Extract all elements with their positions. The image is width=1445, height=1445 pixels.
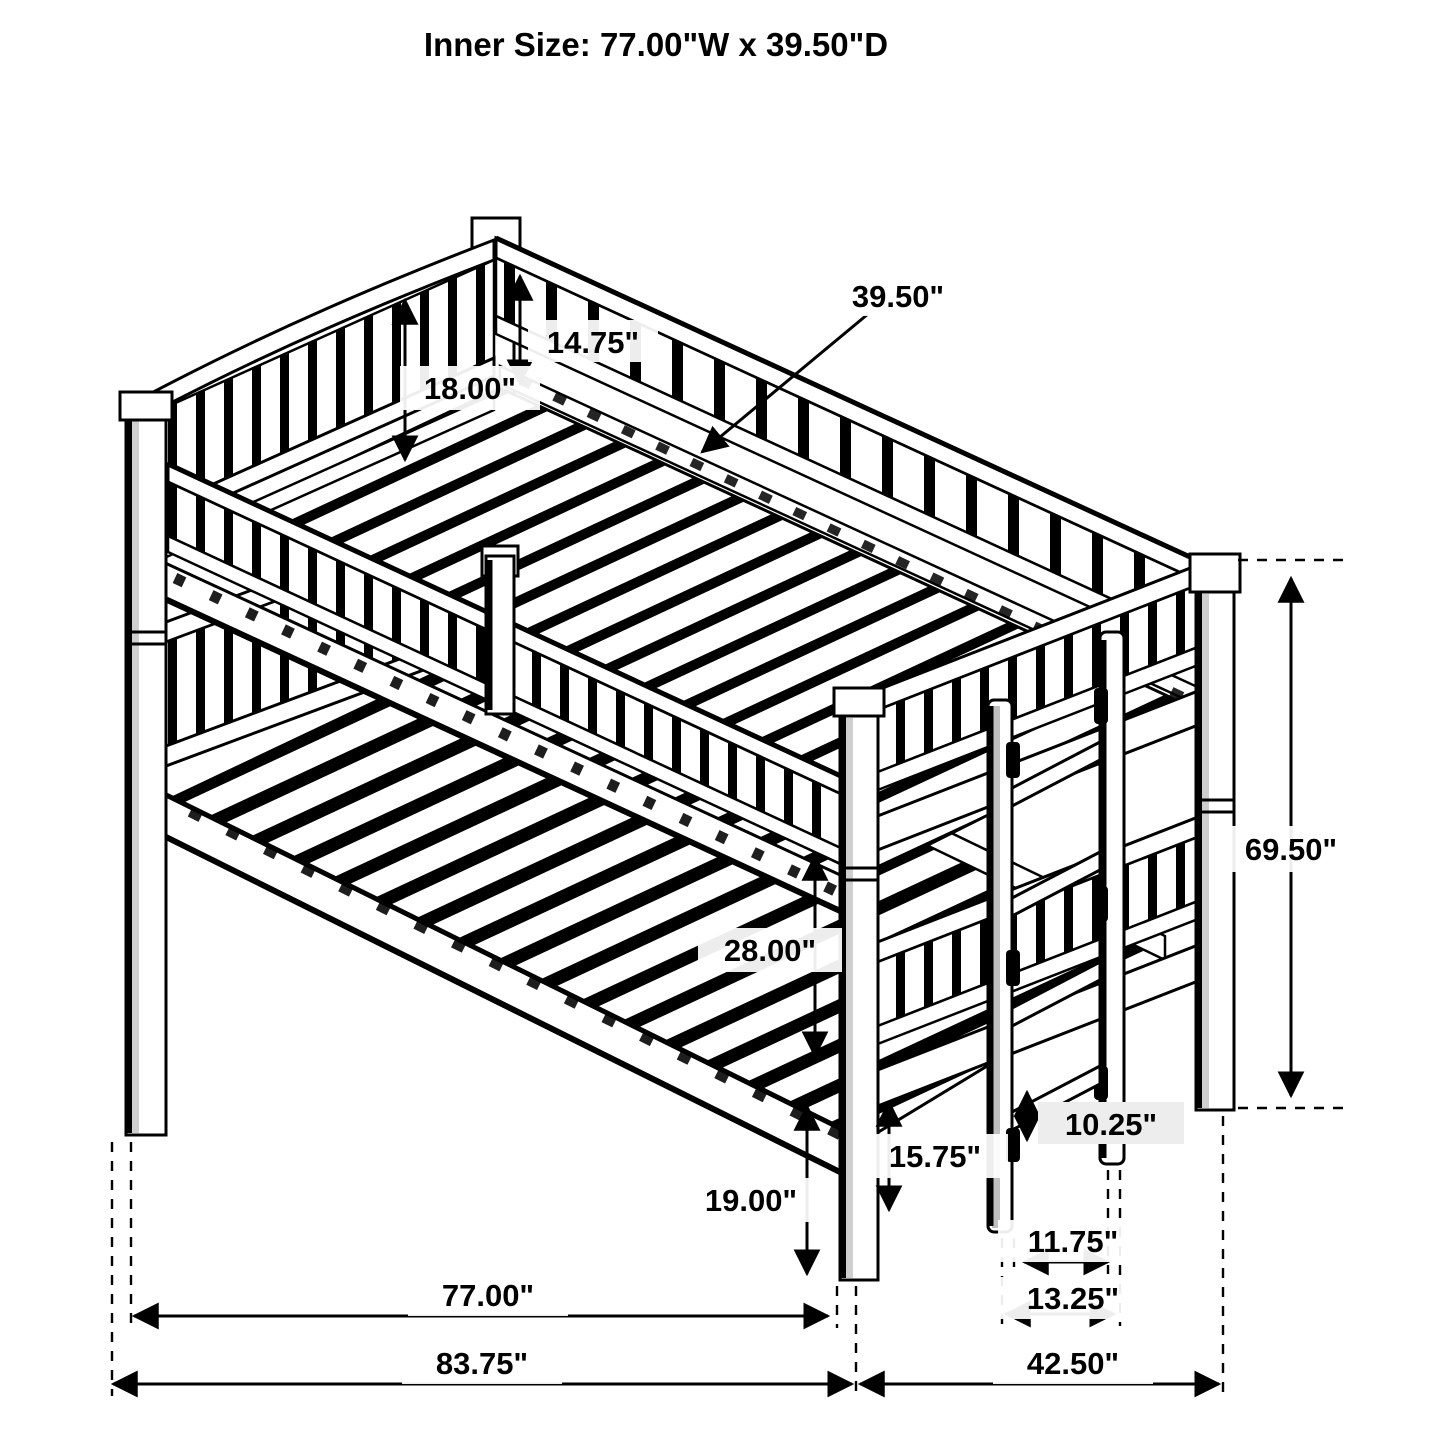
dim-ladder-inner-label: 11.75" (1028, 1224, 1119, 1259)
dim-ladder-inner: 11.75" (998, 1220, 1148, 1262)
dim-overall-length-label: 83.75" (436, 1346, 528, 1381)
dim-ladder-outer: 13.25" (998, 1277, 1148, 1319)
ladder-bracket (1094, 886, 1108, 922)
dim-rung-spacing-label: 10.25" (1065, 1107, 1157, 1142)
dim-under-clearance-label: 15.75" (889, 1139, 981, 1174)
dim-guard-height-label: 14.75" (547, 325, 639, 360)
dim-bunk-clearance-label: 28.00" (724, 933, 816, 968)
dim-inner-depth-label: 39.50" (852, 279, 944, 314)
ladder-bracket (1094, 688, 1108, 724)
head-front-post-cap (120, 392, 172, 420)
page-title: Inner Size: 77.00"W x 39.50"D (424, 26, 888, 63)
foot-front-post-cap (834, 688, 884, 716)
dim-headboard-height-label: 18.00" (424, 371, 516, 406)
dim-overall-height-label: 69.50" (1245, 832, 1337, 867)
dim-inner-length-label: 77.00" (442, 1278, 534, 1313)
ladder-bracket (1006, 950, 1020, 986)
diagram-canvas: 39.50" 14.75" 18.00" 69.50" 28.00" 19.00… (0, 0, 1445, 1445)
bunk-bed-dimension-diagram: 39.50" 14.75" 18.00" 69.50" 28.00" 19.00… (0, 0, 1445, 1445)
foot-back-post-cap (1190, 554, 1240, 592)
dim-rail-floor-height-label: 19.00" (705, 1183, 797, 1218)
dim-ladder-outer-label: 13.25" (1027, 1281, 1119, 1316)
ladder-bracket (1006, 1128, 1020, 1162)
ladder-bracket (1006, 742, 1020, 778)
dim-overall-depth-label: 42.50" (1027, 1346, 1119, 1381)
